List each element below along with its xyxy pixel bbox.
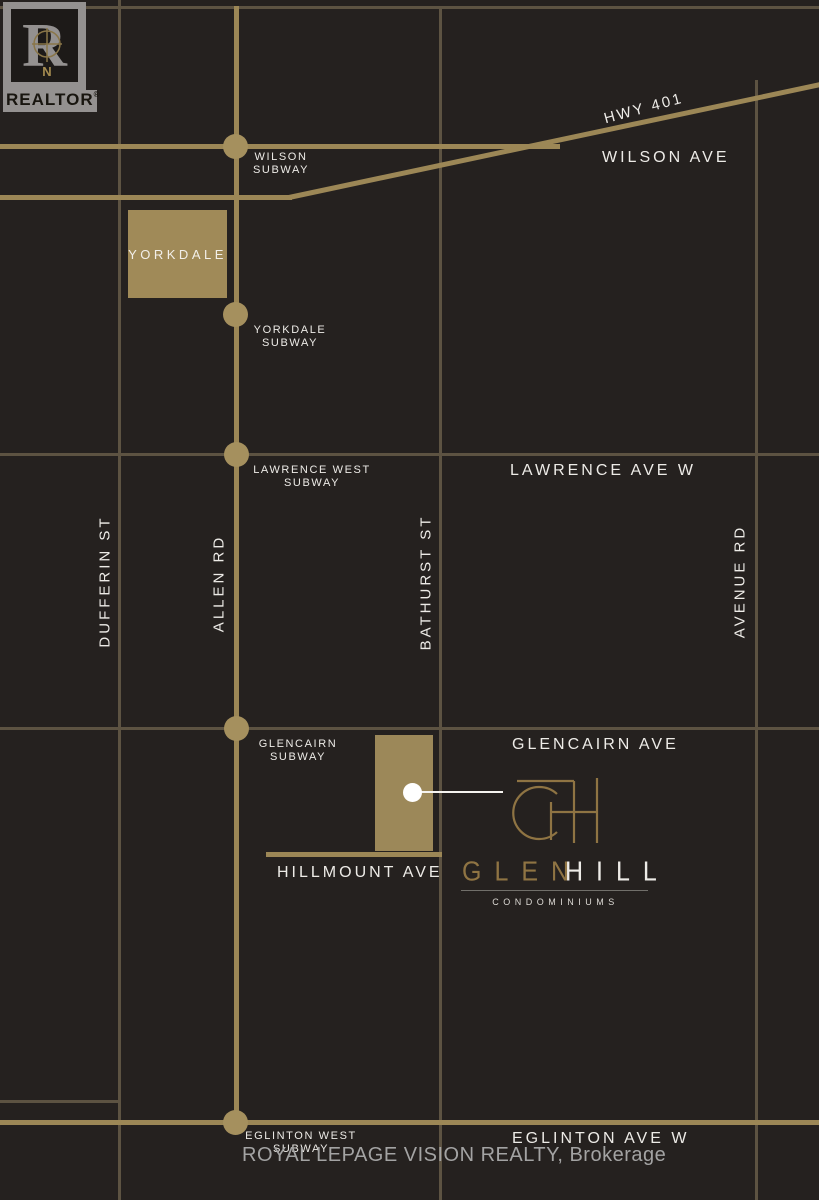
yorkdale-label: YORKDALE <box>128 247 227 262</box>
road-glencairn-ave <box>0 727 819 730</box>
realtor-wordmark-strip: REALTOR® <box>3 90 97 112</box>
road-stub-bottom-left <box>0 1100 120 1103</box>
road-dufferin-st <box>118 0 121 1200</box>
bathurst-st-label: BATHURST ST <box>418 513 435 653</box>
avenue-rd-label: AVENUE RD <box>732 512 749 652</box>
road-eglinton-ave <box>0 1120 819 1125</box>
yorkdale-mall-block: YORKDALE <box>128 210 227 298</box>
glen-hill-location-map: YORKDALE WILSON SUBWAY YORKDALE SUBWAY L… <box>0 0 819 1200</box>
lawrence-west-subway-label: LAWRENCE WEST SUBWAY <box>242 464 382 490</box>
brokerage-credit: ROYAL LEPAGE VISION REALTY, Brokerage <box>242 1144 666 1167</box>
allen-rd-label: ALLEN RD <box>211 514 228 654</box>
glencairn-ave-label: GLENCAIRN AVE <box>512 736 679 754</box>
glen-hill-monogram <box>505 770 605 850</box>
brand-divider <box>461 890 648 891</box>
road-top-gridline <box>0 6 819 9</box>
dufferin-st-label: DUFFERIN ST <box>97 512 114 652</box>
road-wilson-ave <box>0 144 560 149</box>
compass-n-letter: N <box>42 64 51 79</box>
wilson-subway-label: WILSON SUBWAY <box>221 151 341 177</box>
yorkdale-subway-label: YORKDALE SUBWAY <box>230 324 350 350</box>
site-marker-dot <box>403 783 422 802</box>
road-avenue-rd <box>755 80 758 1200</box>
glencairn-subway-label: GLENCAIRN SUBWAY <box>238 738 358 764</box>
road-bathurst-st <box>439 6 442 1200</box>
hillmount-ave-label: HILLMOUNT AVE <box>277 864 443 882</box>
road-hwy401-west <box>0 195 292 200</box>
brand-subtitle: CONDOMINIUMS <box>452 897 659 907</box>
north-compass-icon: N <box>25 20 71 82</box>
road-lawrence-ave <box>0 453 819 456</box>
road-hwy401-diagonal <box>288 81 819 200</box>
road-hillmount-ave <box>266 852 442 857</box>
brand-hill: HILL <box>565 856 670 888</box>
site-pointer-line <box>420 791 503 793</box>
lawrence-ave-label: LAWRENCE AVE W <box>510 462 696 480</box>
wilson-ave-label: WILSON AVE <box>602 149 730 167</box>
